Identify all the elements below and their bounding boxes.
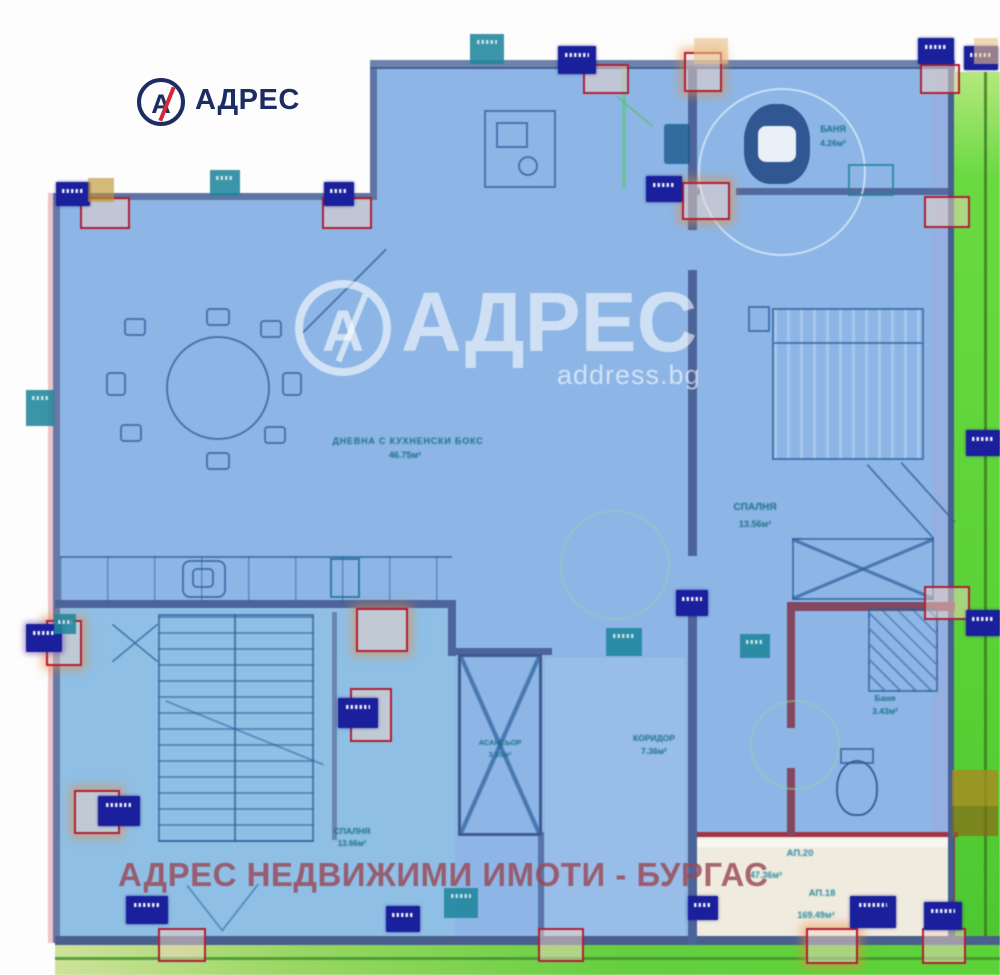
axis-marker (606, 628, 642, 656)
axis-marker (26, 390, 54, 426)
room-label-bathroom-bottom: Баня (875, 693, 896, 703)
toilet-seat-icon (758, 126, 796, 162)
wall-apartment-top (690, 832, 958, 837)
agency-logo: А АДРЕС (135, 72, 295, 128)
room-label-elevator: АСАНСЬОР (479, 738, 522, 747)
dimension-box (850, 896, 896, 928)
column-marker (922, 928, 966, 964)
room-area-corridor: 7.36м² (641, 746, 667, 756)
kitchen-island-inner (496, 122, 528, 148)
dining-chair-icon (120, 424, 142, 442)
dimension-box (966, 430, 1000, 456)
shower-icon (868, 608, 938, 692)
column-marker (356, 608, 408, 652)
bed-pillow-line (774, 342, 922, 344)
column-marker (920, 64, 960, 94)
footer-watermark: АДРЕС НЕДВИЖИМИ ИМОТИ - БУРГАС (118, 856, 768, 894)
column-marker (682, 182, 730, 220)
sink-basin-icon (192, 568, 214, 588)
floor-tint-corridor (545, 658, 685, 936)
logo-mark-letter: А (137, 82, 185, 130)
dimension-box (386, 906, 420, 932)
dimension-box (558, 46, 596, 74)
watermark-site: address.bg (557, 360, 701, 391)
toilet-tank-icon (840, 748, 874, 764)
room-area-living: 46.75м² (389, 450, 421, 460)
dimension-box (966, 610, 1000, 636)
appliance-icon (330, 558, 360, 598)
column-marker (158, 928, 206, 962)
dimension-box (676, 590, 708, 616)
center-watermark: А АДРЕС address.bg (293, 272, 733, 402)
room-label-bathroom-top: БАНЯ (820, 124, 846, 134)
dimension-box (918, 38, 954, 64)
wardrobe-icon (792, 538, 934, 600)
apartment-area-ap18: 169.49м² (797, 910, 834, 920)
adjacent-apartment-window-band (694, 839, 952, 847)
axis-marker (54, 614, 76, 634)
dimension-box (98, 796, 140, 826)
axis-marker (210, 170, 240, 196)
bath-bench-icon (848, 164, 894, 196)
room-label-bedroom-left: СПАЛНЯ (334, 826, 371, 836)
bed-icon (772, 308, 924, 460)
toilet-icon (836, 760, 878, 816)
room-area-bathroom-top: 4.26м² (820, 138, 846, 148)
axis-marker-olive (694, 38, 728, 64)
washbasin-icon (664, 124, 690, 164)
column-marker (806, 928, 858, 964)
dimension-box (324, 182, 354, 206)
dimension-box (338, 698, 378, 728)
dimension-box (56, 182, 90, 206)
axis-marker-olive (952, 770, 998, 806)
wall-top-main (370, 60, 955, 69)
dimension-box (126, 896, 168, 924)
dining-chair-icon (264, 426, 286, 444)
room-label-corridor: КОРИДОР (633, 733, 675, 743)
room-area-bedroom-right: 13.56м² (739, 519, 771, 529)
wall-left (53, 193, 60, 943)
room-area-elevator: 3.20м² (489, 750, 512, 759)
dining-chair-icon (206, 452, 230, 470)
dining-chair-icon (206, 308, 230, 326)
room-area-bedroom-left: 13.66м² (338, 839, 367, 848)
dimension-box (646, 176, 682, 202)
door-arc (750, 700, 840, 790)
door-arc (560, 510, 670, 620)
door-gap-bathroom (688, 230, 697, 270)
dining-chair-icon (124, 318, 146, 336)
kitchen-island-burner (518, 156, 538, 176)
kitchen-counter-icon (60, 556, 452, 602)
floorplan-drawing: ДНЕВНА С КУХНЕНСКИ БОКС 46.75м² СПАЛНЯ 1… (0, 0, 1000, 975)
wall-stairs-right (332, 612, 337, 840)
axis-marker-olive (974, 38, 998, 64)
watermark-title: АДРЕС (401, 274, 697, 371)
axis-marker (740, 634, 770, 658)
column-marker (924, 586, 970, 620)
room-label-bedroom-right: СПАЛНЯ (733, 502, 776, 513)
watermark-mark-letter: А (295, 286, 391, 382)
axis-marker-olive (88, 178, 114, 202)
apartment-label-ap18: АП.18 (809, 888, 836, 899)
dining-table-icon (166, 336, 270, 440)
floorplan-image: ДНЕВНА С КУХНЕНСКИ БОКС 46.75м² СПАЛНЯ 1… (0, 0, 1000, 975)
wall-step-vertical (370, 62, 377, 200)
dimension-box (688, 896, 718, 920)
stairs-landing-x (112, 624, 158, 662)
dining-chair-icon (106, 372, 126, 396)
room-label-living: ДНЕВНА С КУХНЕНСКИ БОКС (333, 436, 484, 446)
nightstand-icon (748, 306, 770, 332)
apartment-label-ap20: АП.20 (787, 848, 814, 859)
column-marker (538, 928, 584, 962)
axis-marker (470, 34, 504, 64)
axis-marker-olive (952, 806, 998, 836)
column-marker (924, 196, 970, 228)
logo-wordmark: АДРЕС (195, 84, 300, 117)
dining-chair-icon (260, 320, 282, 338)
room-area-bathroom-bottom: 3.43м² (872, 706, 898, 716)
dimension-box (924, 902, 962, 930)
